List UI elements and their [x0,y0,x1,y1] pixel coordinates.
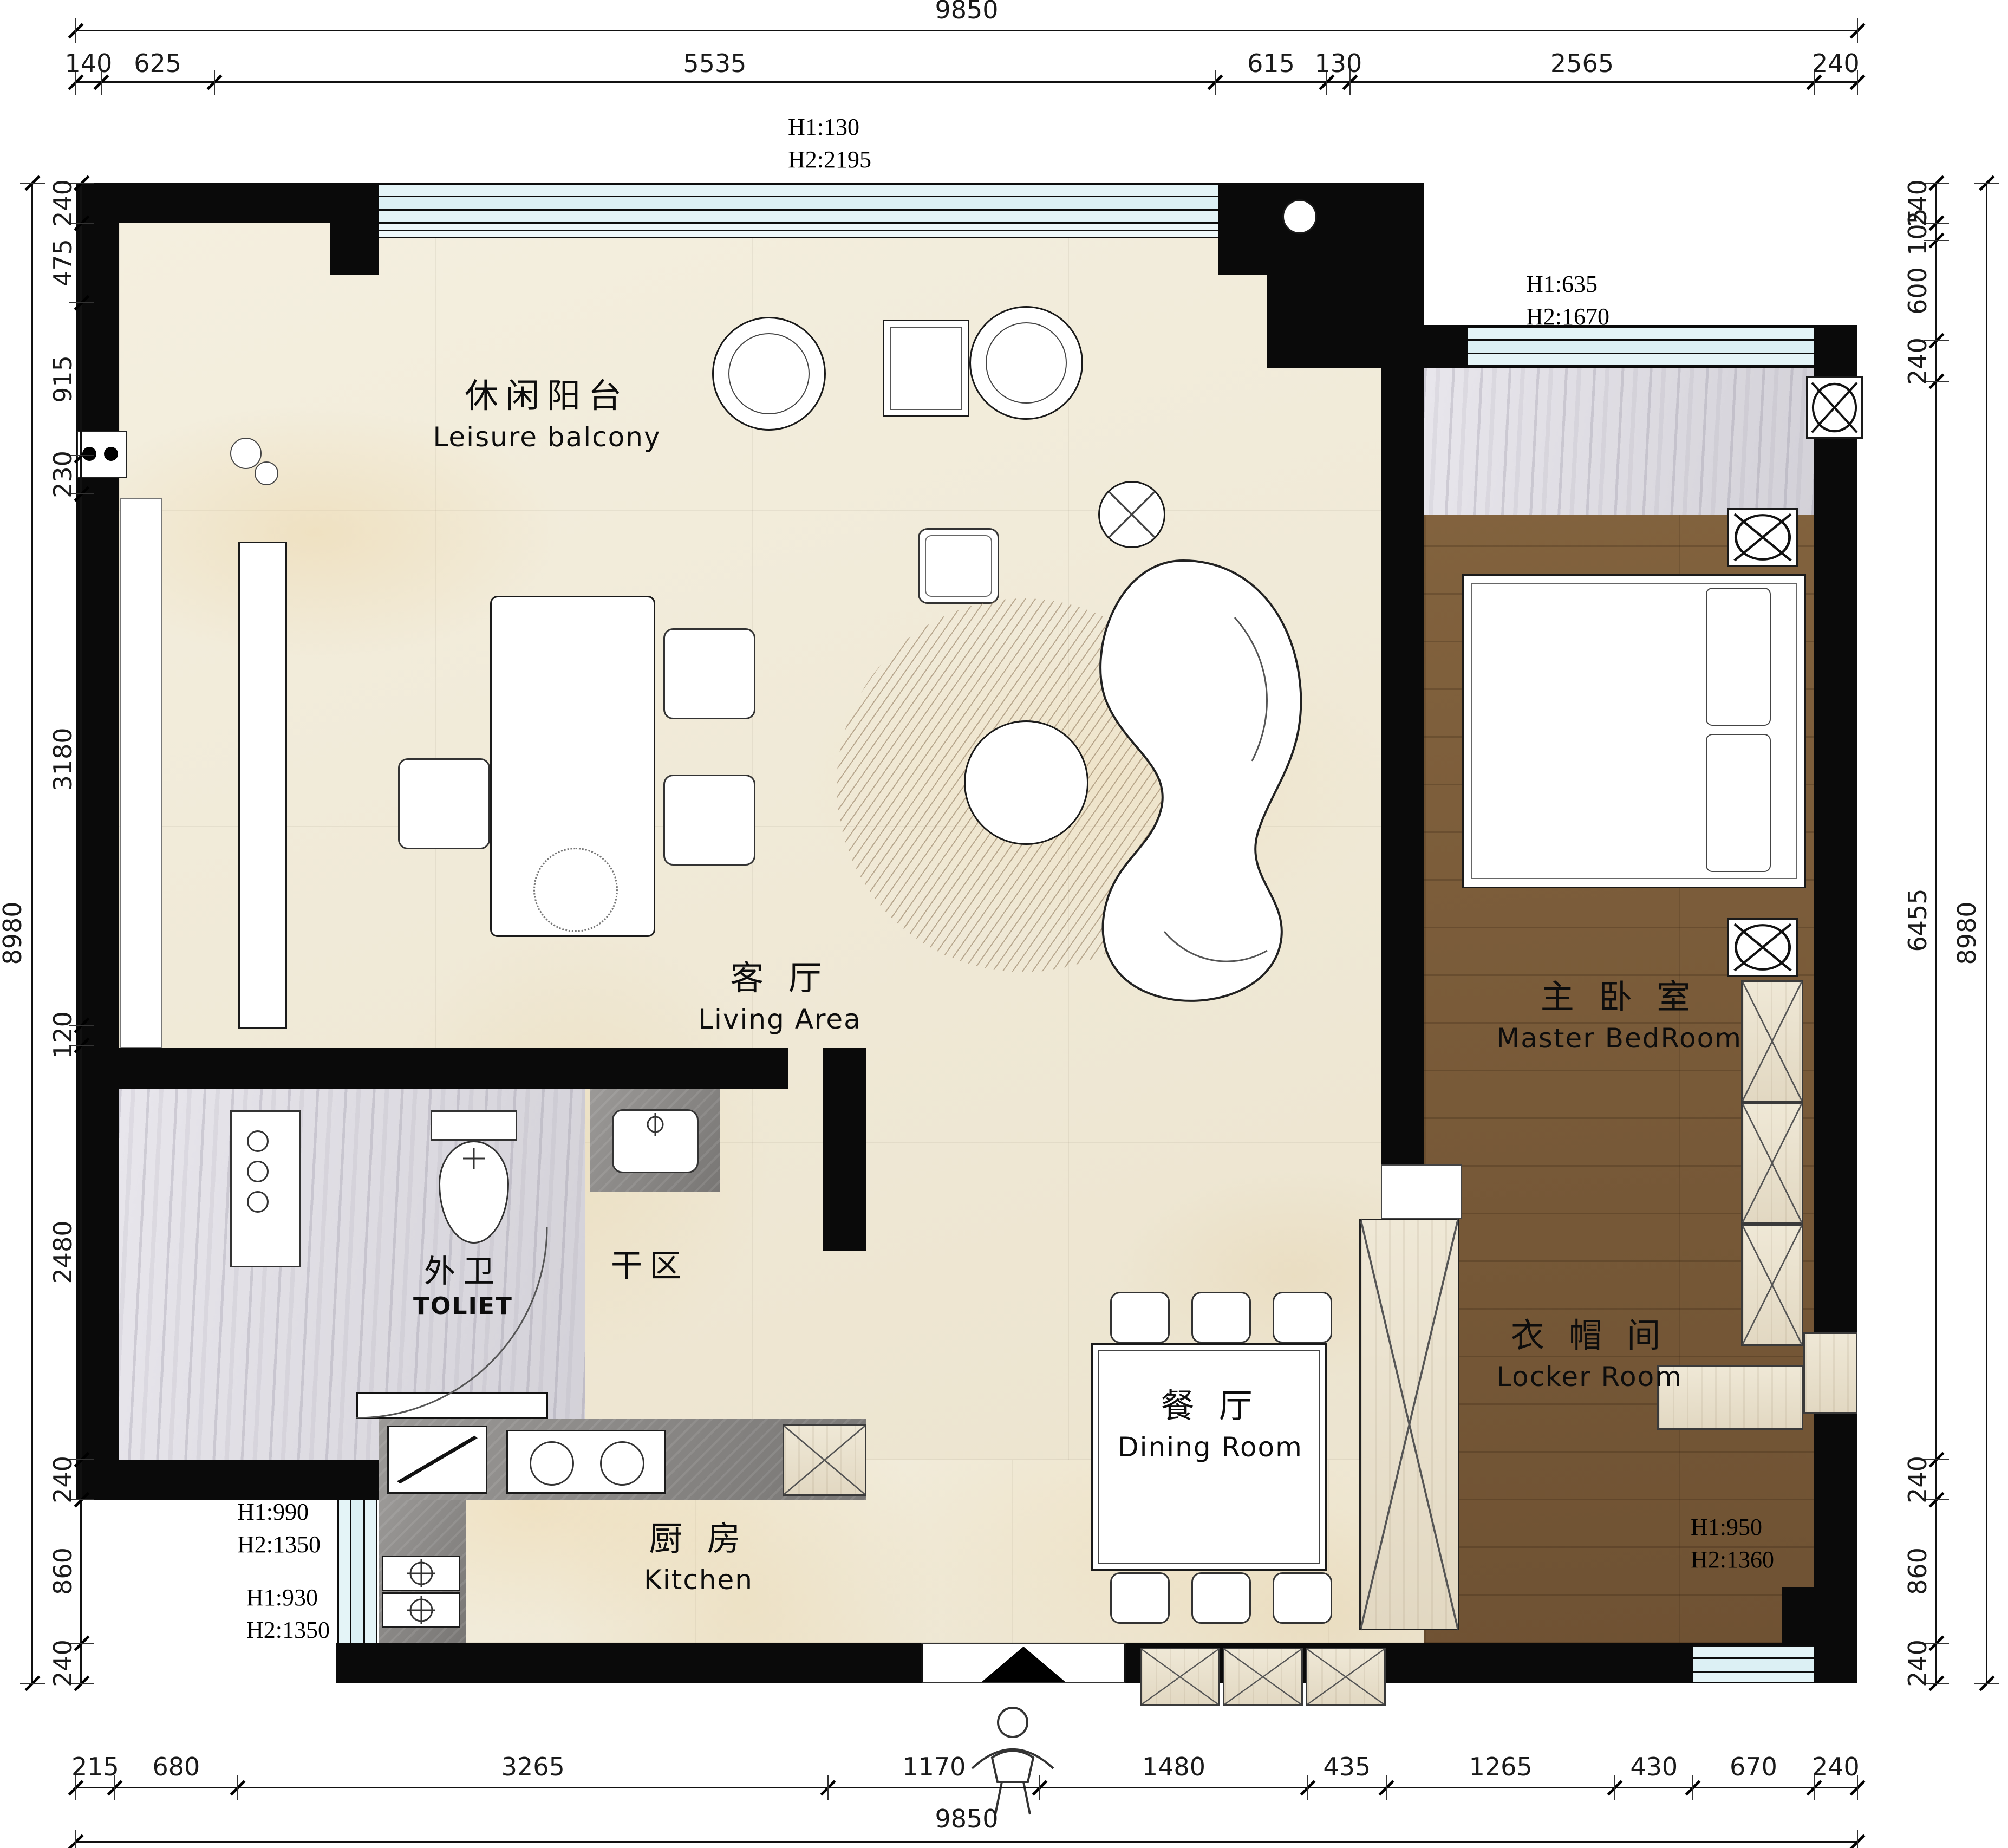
entry-direction-triangle [981,1647,1066,1682]
room-label-dry-area: 干区 [611,1240,689,1286]
shoe-cabinet [1223,1648,1303,1706]
dim-tick [74,1635,90,1651]
dim-label: 6455 [1903,889,1932,952]
dim-label: 240 [1812,49,1860,78]
planter-round-table [1098,481,1165,548]
nightstand-fan-upper [1727,508,1798,567]
room-label-toilet: 外卫 TOLIET [413,1246,513,1320]
room-label-living: 客 厅 Living Area [698,951,862,1035]
cabinet-top-strip [1381,1164,1462,1219]
room-label-master-bedroom: 主 卧 室 Master BedRoom [1496,969,1742,1054]
annotation-bottom-right-window: H1:950 H2:1360 [1691,1511,1774,1576]
dim-label: 625 [134,49,181,78]
room-label-zh: 餐 厅 [1118,1378,1303,1427]
balcony-chair-cushion [728,333,810,414]
dim-label: 240 [1812,1752,1860,1781]
annotation-line: H2:2195 [788,144,871,176]
wall-pier-right [1218,183,1267,275]
wall-left-vent-box [77,431,127,478]
nightstand-fan-lower [1727,918,1798,977]
dim-label: 860 [1903,1547,1932,1595]
dim-label: 240 [1903,179,1932,227]
dim-label: 8980 [0,901,27,965]
washer-tower [230,1110,301,1267]
dim-label: 1480 [1142,1752,1205,1781]
wall-toilet-top [119,1048,788,1089]
balcony-table-inner-line [890,327,962,410]
wall-left [76,183,119,1500]
room-label-en: Master BedRoom [1496,1023,1742,1054]
dim-label: 1170 [902,1752,966,1781]
dim-line-right-inner [1935,183,1937,1683]
dining-chair [1191,1572,1251,1624]
living-chair [663,775,755,866]
dim-label: 230 [48,451,77,498]
dim-label: 8980 [1952,901,1981,965]
pillow [1706,588,1771,726]
dim-label: 915 [48,355,77,403]
wall-step-bottom-right [1782,1587,1857,1643]
ac-unit-bay [1806,376,1863,439]
wall-divider-living-bedroom [1381,368,1424,1219]
room-label-en: TOLIET [413,1292,513,1320]
dim-tick [74,1676,90,1691]
washer-knob [247,1191,269,1213]
plant-pot [255,461,278,485]
dim-label: 240 [48,179,77,227]
dining-chair [1191,1292,1251,1343]
dim-label: 600 [1903,267,1932,315]
table-flower-decor [533,848,618,932]
dining-chair [1273,1572,1332,1624]
stove [506,1430,666,1494]
dim-label: 240 [1903,1456,1932,1504]
wall-right [1814,325,1857,1683]
room-label-zh: 衣 帽 间 [1496,1308,1683,1357]
kitchen-sink [382,1592,460,1628]
dim-label: 615 [1247,49,1295,78]
wall-pier-left [330,183,379,275]
annotation-left-window-upper: H1:990 H2:1350 [237,1496,321,1561]
burner [530,1441,574,1486]
room-label-zh: 主 卧 室 [1496,969,1742,1018]
wardrobe-box [1741,1224,1803,1346]
dim-line-top-inner [76,81,1857,83]
wardrobe-box [1741,1102,1803,1224]
window-balcony-top [379,183,1218,223]
toilet-tank [431,1110,517,1141]
room-label-zh: 干区 [611,1240,689,1286]
dim-line-top-outer [76,30,1857,31]
room-label-dining: 餐 厅 Dining Room [1118,1378,1303,1463]
locker-tall-cabinet [1359,1219,1459,1630]
entry-person-figure [959,1701,1067,1817]
room-label-locker: 衣 帽 间 Locker Room [1496,1308,1683,1392]
shoe-cabinet [1306,1648,1386,1706]
kitchen-cabinet [783,1424,866,1496]
dim-label: 3265 [501,1752,565,1781]
dim-label: 860 [48,1547,77,1595]
vent-dot [104,447,118,461]
annotation-top-window: H1:130 H2:2195 [788,111,871,176]
room-label-leisure-balcony: 休闲阳台 Leisure balcony [433,368,661,453]
dim-line-bottom-outer [76,1841,1857,1843]
living-chair [663,628,755,719]
annotation-line: H2:1670 [1526,301,1609,333]
dim-line-right-outer [1986,183,1987,1683]
dim-label: 475 [48,239,77,287]
annotation-line: H1:635 [1526,268,1609,301]
floor-bedroom-bay [1424,368,1814,515]
balcony-chair-cushion [986,322,1067,404]
locker-side-box [1803,1332,1857,1414]
column [1282,199,1317,234]
dim-label: 215 [71,1752,119,1781]
dim-label: 670 [1730,1752,1777,1781]
balcony-table [883,320,969,417]
dim-label: 105 [1903,208,1932,256]
annotation-left-window-lower: H1:930 H2:1350 [246,1582,330,1647]
annotation-line: H1:950 [1691,1511,1774,1544]
dim-extension [69,1643,94,1644]
window-balcony-sill [379,223,1218,238]
dim-label: 240 [1903,337,1932,385]
dim-label: 2480 [48,1221,77,1284]
wall-step-bottom-left [76,1460,379,1500]
dim-label: 5535 [683,49,746,78]
dining-chair [1110,1572,1170,1624]
living-chair [398,758,490,849]
kitchen-sink [382,1556,460,1591]
dining-chair [1110,1292,1170,1343]
wardrobe-box [1741,980,1803,1102]
room-label-zh: 客 厅 [698,951,862,999]
annotation-line: H2:1360 [1691,1544,1774,1576]
dim-line-left-inner [80,183,82,1683]
window-bottom-right [1693,1645,1814,1682]
annotation-line: H2:1350 [246,1614,330,1647]
plant-pot [230,438,262,469]
annotation-line: H1:130 [788,111,871,144]
dim-label: 1265 [1469,1752,1533,1781]
room-label-zh: 厨 房 [644,1511,753,1560]
dim-line-left-outer [31,183,33,1683]
floor-plan-canvas: 休闲阳台 Leisure balcony 客 厅 Living Area 主 卧… [0,0,2008,1848]
room-label-en: Living Area [698,1004,862,1035]
room-label-en: Dining Room [1118,1431,1303,1463]
dim-label: 2565 [1550,49,1614,78]
annotation-line: H2:1350 [237,1528,321,1561]
dim-extension [69,1683,94,1684]
dim-label: 130 [1314,49,1362,78]
dim-label: 9850 [935,0,998,24]
dim-label: 120 [48,1011,77,1059]
dim-label: 240 [1903,1639,1932,1687]
wall-ledge [120,498,162,1048]
kidney-sofa [1056,552,1311,1013]
room-label-en: Leisure balcony [433,421,661,453]
annotation-line: H1:930 [246,1582,330,1614]
room-label-zh: 外卫 [413,1246,513,1291]
dim-label: 240 [48,1456,77,1504]
vent-dot [82,447,96,461]
burner [600,1441,644,1486]
stool [918,528,999,604]
dim-label: 680 [152,1752,200,1781]
window-bedroom-top [1468,327,1814,367]
dim-label: 140 [64,49,112,78]
dim-extension [1857,1830,1858,1848]
dim-label: 430 [1630,1752,1678,1781]
dim-line-bottom-inner [76,1787,1857,1788]
room-label-en: Locker Room [1496,1361,1683,1392]
dim-label: 3180 [48,728,77,791]
room-label-kitchen: 厨 房 Kitchen [644,1511,753,1596]
room-label-zh: 休闲阳台 [433,368,661,417]
stool-inner-line [925,535,992,597]
annotation-line: H1:990 [237,1496,321,1528]
washer-knob [247,1130,269,1152]
window-kitchen-west [337,1500,377,1643]
washer-knob [247,1161,269,1182]
dim-label: 435 [1323,1752,1371,1781]
shoe-cabinet [1140,1648,1220,1706]
room-label-en: Kitchen [644,1564,753,1596]
wall-dryarea-stub [823,1048,866,1251]
pillow [1706,734,1771,872]
vanity-basin [612,1109,699,1173]
cutting-board [387,1426,487,1494]
dim-extension [75,1830,76,1848]
dining-chair [1273,1292,1332,1343]
tv-console [238,542,287,1029]
dim-label: 240 [48,1639,77,1687]
annotation-bedroom-window: H1:635 H2:1670 [1526,268,1609,333]
